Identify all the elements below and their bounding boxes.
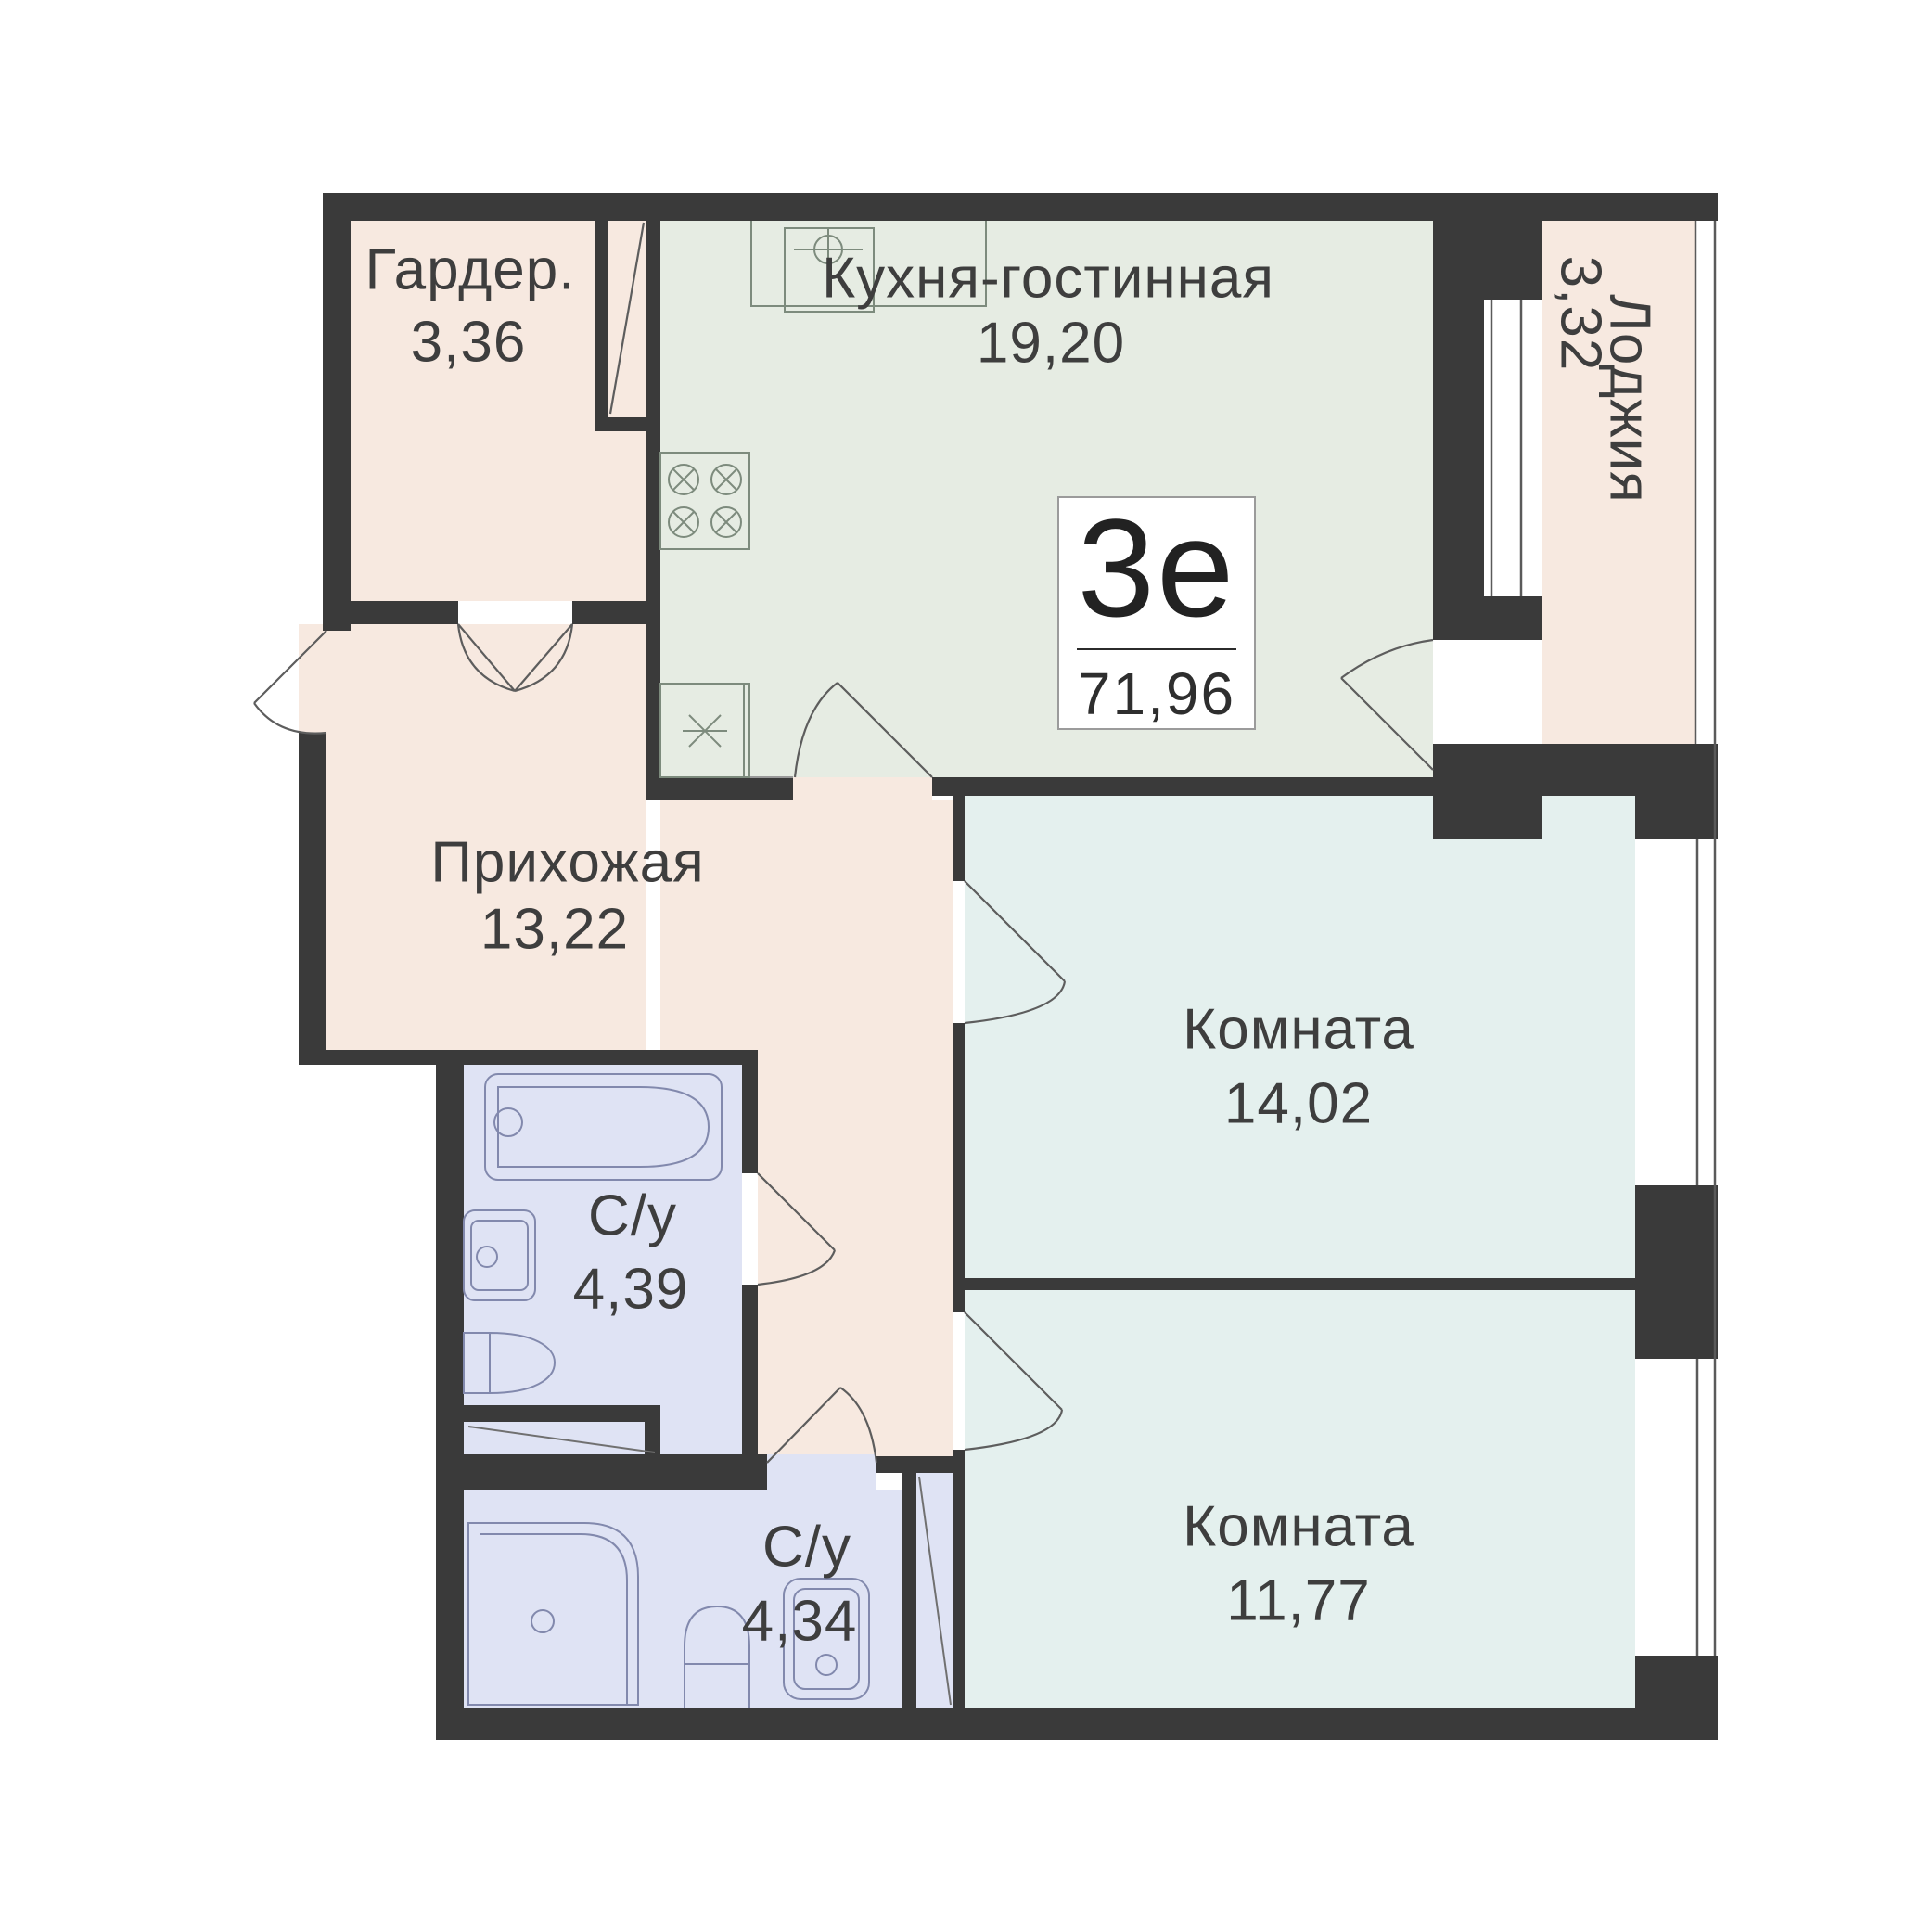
appliance-star-icon <box>660 684 749 777</box>
stove-burners-icon <box>660 453 749 549</box>
shower-icon <box>468 1523 638 1705</box>
kitchen-label: Кухня-гостинная <box>822 246 1274 312</box>
hallway-area: 13,22 <box>480 897 629 963</box>
toilet-icon <box>464 1333 555 1393</box>
loggia-area: 3,32 <box>1548 256 1614 372</box>
hallway-label: Прихожая <box>430 830 704 896</box>
room1-area: 14,02 <box>1224 1071 1373 1137</box>
floor-plan: Гардер. 3,36 Кухня-гостинная 19,20 Лоджи… <box>0 0 1932 1932</box>
room1-label: Комната <box>1183 997 1414 1063</box>
room2-label: Комната <box>1183 1494 1414 1560</box>
unit-type-badge: 3е 71,96 <box>1057 496 1256 730</box>
toilet-icon <box>685 1606 749 1708</box>
room2-area: 11,77 <box>1226 1568 1371 1634</box>
bathroom2-area: 4,34 <box>742 1589 858 1655</box>
unit-total-area: 71,96 <box>1078 659 1235 728</box>
unit-type-label: 3е <box>1078 498 1236 637</box>
bathroom2-label: С/у <box>762 1515 851 1580</box>
bathroom1-area: 4,39 <box>573 1257 689 1323</box>
bathroom1-label: С/у <box>588 1184 677 1249</box>
badge-divider <box>1077 648 1236 650</box>
wardrobe-area: 3,36 <box>411 310 527 376</box>
kitchen-area: 19,20 <box>977 311 1125 377</box>
bathtub-icon <box>485 1074 722 1180</box>
wardrobe-label: Гардер. <box>365 237 576 303</box>
washbasin-icon <box>464 1210 535 1300</box>
